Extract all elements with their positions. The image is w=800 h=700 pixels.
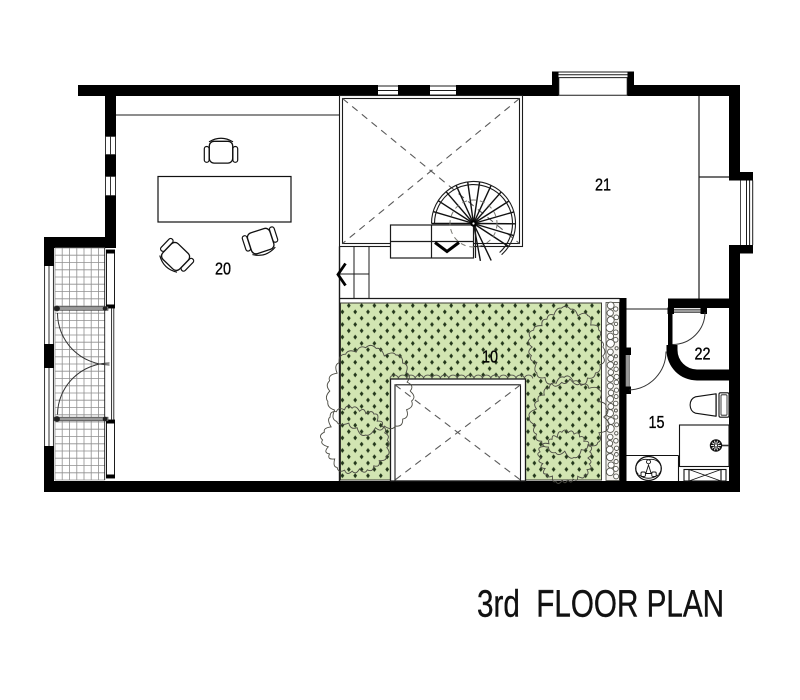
svg-text:15: 15 <box>649 412 665 432</box>
svg-text:21: 21 <box>595 175 611 195</box>
svg-text:20: 20 <box>215 259 231 279</box>
svg-text:10: 10 <box>482 347 498 367</box>
svg-text:3rd FLOOR PLAN: 3rd FLOOR PLAN <box>477 584 724 626</box>
svg-text:22: 22 <box>695 344 711 364</box>
